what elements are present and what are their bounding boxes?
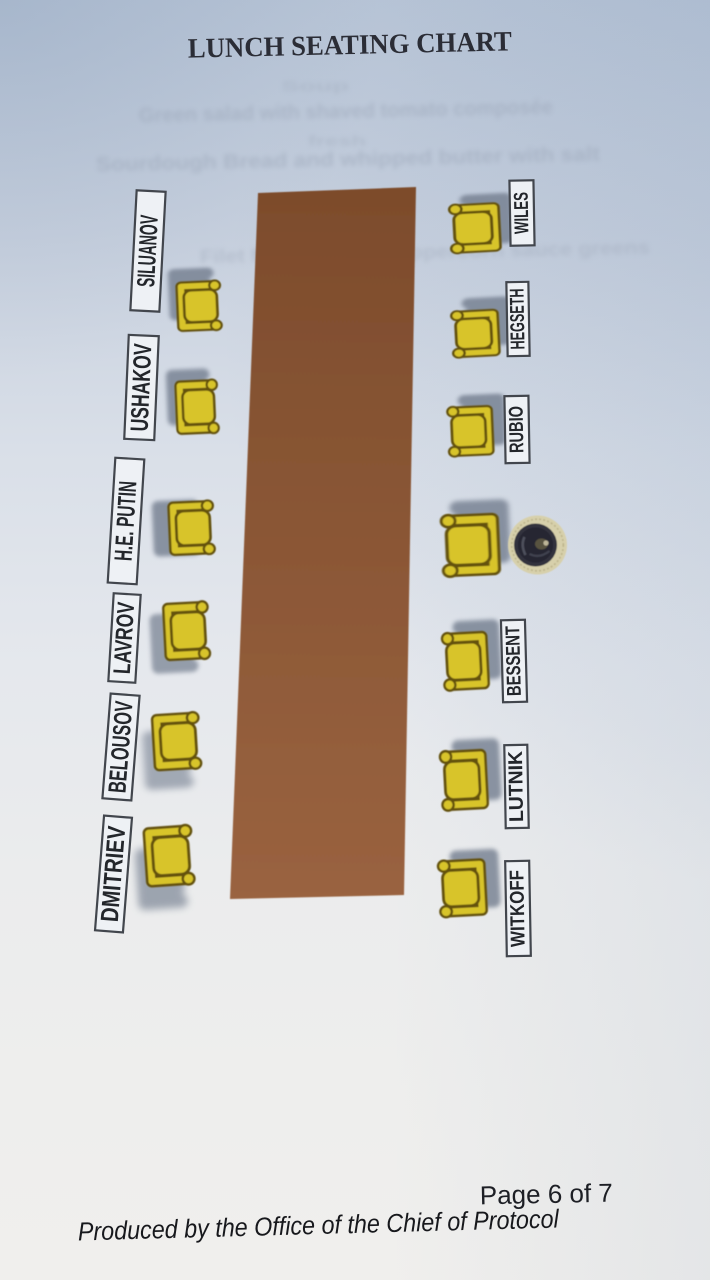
svg-text:SILUANOV: SILUANOV — [132, 214, 164, 288]
svg-text:USHAKOV: USHAKOV — [126, 343, 158, 432]
svg-text:BESSENT: BESSENT — [502, 626, 526, 697]
svg-text:WITKOFF: WITKOFF — [506, 870, 529, 947]
svg-text:HEGSETH: HEGSETH — [506, 288, 529, 349]
svg-text:RUBIO: RUBIO — [506, 406, 529, 453]
svg-text:WILES: WILES — [511, 192, 534, 234]
svg-text:LUTNIK: LUTNIK — [505, 750, 528, 822]
svg-text:LAVROV: LAVROV — [109, 601, 140, 675]
svg-text:fresh: fresh — [308, 133, 366, 150]
svg-text:H.E. PUTIN: H.E. PUTIN — [110, 480, 143, 562]
svg-text:Soup: Soup — [281, 78, 349, 95]
